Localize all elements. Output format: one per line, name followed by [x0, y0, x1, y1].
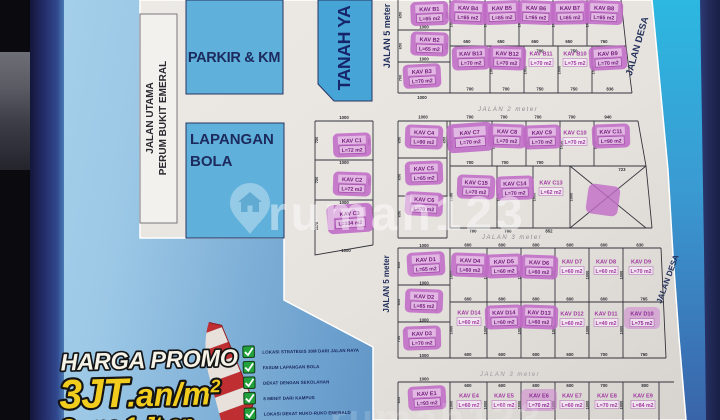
svg-text:L=70 m2: L=70 m2: [597, 403, 618, 409]
svg-text:1000: 1000: [619, 326, 624, 335]
svg-text:700: 700: [600, 383, 608, 388]
svg-text:L=72 m2: L=72 m2: [342, 147, 363, 154]
svg-text:600: 600: [464, 352, 472, 357]
svg-text:JALAN 2 meter: JALAN 2 meter: [477, 107, 538, 113]
svg-text:KAV E8: KAV E8: [597, 394, 617, 400]
svg-text:KAV D8: KAV D8: [596, 260, 616, 266]
svg-text:1000: 1000: [569, 193, 574, 202]
svg-text:L=60 m2: L=60 m2: [562, 269, 583, 275]
svg-text:L=60 m2: L=60 m2: [596, 269, 617, 275]
svg-text:940: 940: [604, 115, 612, 120]
svg-text:765: 765: [640, 297, 648, 302]
svg-text:KAV C1: KAV C1: [342, 138, 362, 145]
svg-text:KAV C4: KAV C4: [414, 130, 435, 137]
svg-text:1000: 1000: [419, 318, 429, 323]
svg-text:836: 836: [606, 87, 614, 92]
svg-text:600: 600: [566, 243, 574, 248]
svg-text:PERUM BUKIT EMERAL: PERUM BUKIT EMERAL: [158, 61, 169, 175]
svg-text:FASUM LAPANGAN BOLA: FASUM LAPANGAN BOLA: [263, 364, 321, 370]
svg-text:760: 760: [600, 39, 608, 44]
svg-text:L=60 m2: L=60 m2: [528, 319, 549, 326]
svg-text:L=65 m2: L=65 m2: [560, 15, 581, 21]
svg-text:rumah123: rumah123: [330, 397, 543, 420]
svg-text:650: 650: [497, 39, 505, 44]
svg-text:L=84 m2: L=84 m2: [633, 403, 654, 409]
svg-text:L=60 m2: L=60 m2: [459, 267, 480, 274]
svg-text:KAV C9: KAV C9: [532, 130, 552, 137]
svg-text:600: 600: [464, 383, 472, 388]
svg-text:KAV D2: KAV D2: [414, 294, 434, 301]
svg-text:700: 700: [534, 115, 542, 120]
svg-text:L=65 m2: L=65 m2: [416, 266, 437, 273]
svg-text:KAV C14: KAV C14: [503, 181, 527, 188]
svg-text:650: 650: [463, 39, 471, 44]
svg-text:L=70 m2: L=70 m2: [496, 60, 517, 67]
svg-text:1000: 1000: [418, 115, 428, 120]
svg-text:KAV B12: KAV B12: [495, 51, 518, 58]
svg-text:600: 600: [600, 297, 608, 302]
svg-text:KAV D6: KAV D6: [529, 260, 549, 267]
svg-text:650: 650: [396, 262, 401, 269]
svg-text:L=75 m2: L=75 m2: [632, 321, 653, 327]
svg-text:L=65 m2: L=65 m2: [414, 175, 435, 182]
svg-text:KAV C11: KAV C11: [599, 129, 622, 136]
svg-text:L=60 m2: L=60 m2: [494, 319, 515, 326]
svg-text:650: 650: [398, 43, 403, 50]
svg-text:LAPANGAN: LAPANGAN: [190, 131, 274, 148]
svg-text:1000: 1000: [419, 57, 429, 62]
svg-text:700: 700: [466, 87, 474, 92]
svg-text:L=60 m2: L=60 m2: [528, 269, 549, 276]
svg-text:KAV C15: KAV C15: [464, 180, 487, 187]
svg-text:650: 650: [396, 299, 401, 306]
svg-text:KAV C5: KAV C5: [414, 166, 434, 173]
svg-text:LOKASI STRATEGIS 30M DARI JALA: LOKASI STRATEGIS 30M DARI JALAN RAYA: [262, 348, 359, 355]
svg-text:730: 730: [396, 336, 401, 343]
svg-text:3JT.an/m2: 3JT.an/m2: [59, 367, 221, 417]
svg-text:600: 600: [464, 297, 472, 302]
svg-text:BOLA: BOLA: [190, 153, 233, 170]
svg-text:L=65 m2: L=65 m2: [419, 16, 440, 23]
svg-text:L=70 m2: L=70 m2: [531, 61, 552, 67]
svg-text:L=62 m2: L=62 m2: [541, 190, 562, 196]
svg-text:KAV D4: KAV D4: [460, 258, 481, 265]
svg-text:JALAN 5 meter: JALAN 5 meter: [382, 3, 392, 68]
svg-text:KAV B8: KAV B8: [594, 6, 614, 13]
svg-text:L=40 m2: L=40 m2: [596, 321, 617, 327]
svg-text:700: 700: [466, 160, 474, 165]
svg-text:KAV D5: KAV D5: [494, 259, 514, 266]
svg-text:650: 650: [397, 137, 402, 144]
svg-text:DEKAT DENGAN SEKOLAHAN: DEKAT DENGAN SEKOLAHAN: [263, 379, 329, 385]
svg-text:KAV E9: KAV E9: [633, 394, 653, 400]
svg-text:8 MENIT DARI KAMPUS: 8 MENIT DARI KAMPUS: [263, 395, 315, 401]
svg-text:1000: 1000: [339, 160, 349, 165]
svg-text:L=70 m2: L=70 m2: [532, 139, 553, 146]
svg-text:KAV D13: KAV D13: [527, 310, 550, 317]
svg-text:L=65 m2: L=65 m2: [593, 15, 614, 22]
svg-text:L=90 m2: L=90 m2: [601, 138, 622, 145]
svg-text:KAV B1: KAV B1: [419, 7, 439, 14]
svg-text:600: 600: [464, 243, 472, 248]
svg-text:KAV D9: KAV D9: [631, 260, 651, 266]
svg-text:KAV B9: KAV B9: [598, 51, 618, 58]
svg-text:L=65 m2: L=65 m2: [525, 15, 546, 22]
svg-text:700: 700: [502, 87, 510, 92]
svg-text:L=60 m2: L=60 m2: [494, 268, 515, 275]
svg-text:JALAN 3 meter: JALAN 3 meter: [479, 372, 540, 378]
svg-text:600: 600: [498, 383, 506, 388]
svg-text:700: 700: [501, 160, 509, 165]
svg-text:L=75 m2: L=75 m2: [565, 61, 586, 67]
svg-text:L=90 m2: L=90 m2: [413, 139, 434, 146]
svg-text:KAV D14: KAV D14: [457, 311, 481, 317]
svg-text:L=70 m2: L=70 m2: [412, 78, 433, 85]
svg-text:600: 600: [532, 383, 540, 388]
svg-text:JALAN 5 meter: JALAN 5 meter: [382, 255, 391, 312]
svg-text:KAV D11: KAV D11: [595, 312, 618, 318]
svg-text:1000: 1000: [419, 281, 429, 286]
svg-text:KAV C10: KAV C10: [563, 131, 586, 137]
svg-text:KAV B5: KAV B5: [492, 6, 512, 13]
svg-text:KAV B13: KAV B13: [459, 51, 482, 58]
svg-text:L=70 m2: L=70 m2: [496, 138, 517, 145]
svg-text:700: 700: [466, 115, 474, 120]
svg-text:KAV D7: KAV D7: [562, 260, 582, 266]
svg-text:1000: 1000: [339, 115, 349, 120]
svg-text:L=70 m2: L=70 m2: [598, 60, 619, 67]
svg-text:PARKIR & KM: PARKIR & KM: [188, 50, 281, 66]
svg-text:KAV D14: KAV D14: [492, 310, 516, 317]
svg-text:600: 600: [532, 352, 540, 357]
svg-text:L=70 m2: L=70 m2: [461, 60, 482, 67]
svg-text:720: 720: [314, 137, 319, 144]
svg-text:1000: 1000: [585, 271, 590, 280]
svg-text:700: 700: [500, 115, 508, 120]
svg-text:L=65 m2: L=65 m2: [457, 15, 478, 22]
svg-text:1000: 1000: [585, 401, 590, 410]
svg-text:650: 650: [531, 39, 539, 44]
svg-text:KAV D10: KAV D10: [630, 312, 653, 318]
svg-text:650: 650: [397, 174, 402, 181]
svg-text:L=65 m2: L=65 m2: [413, 303, 434, 310]
svg-text:TANAH YA: TANAH YA: [334, 5, 354, 90]
svg-text:650: 650: [398, 12, 403, 19]
svg-text:650: 650: [565, 39, 573, 44]
svg-text:1000: 1000: [341, 248, 351, 253]
svg-text:KAV C2: KAV C2: [342, 177, 362, 184]
svg-text:KAV B10: KAV B10: [563, 52, 586, 58]
svg-text:KAV C8: KAV C8: [497, 129, 517, 136]
svg-text:800: 800: [641, 383, 649, 388]
svg-text:L=70 m2: L=70 m2: [565, 140, 586, 146]
svg-text:723: 723: [618, 167, 626, 172]
svg-text:750: 750: [536, 87, 544, 92]
svg-text:L=65 m2: L=65 m2: [419, 46, 440, 53]
svg-text:L=70 m2: L=70 m2: [631, 269, 652, 275]
svg-text:630: 630: [636, 243, 644, 248]
svg-text:KAV D3: KAV D3: [412, 331, 432, 338]
svg-text:600: 600: [600, 243, 608, 248]
svg-text:600: 600: [498, 352, 506, 357]
svg-text:600: 600: [498, 297, 506, 302]
svg-text:L=60 m2: L=60 m2: [562, 403, 583, 409]
svg-text:rumah123: rumah123: [268, 188, 527, 241]
svg-text:L=70 m2: L=70 m2: [412, 340, 433, 347]
svg-text:KAV B6: KAV B6: [526, 6, 546, 13]
svg-text:600: 600: [532, 243, 540, 248]
svg-text:L=65 m2: L=65 m2: [492, 15, 513, 22]
svg-text:700: 700: [568, 115, 576, 120]
svg-text:L=60 m2: L=60 m2: [562, 321, 583, 327]
svg-text:1000: 1000: [449, 326, 454, 335]
svg-text:1000: 1000: [417, 95, 427, 100]
svg-text:600: 600: [498, 243, 506, 248]
svg-text:700: 700: [536, 160, 544, 165]
svg-text:KAV B4: KAV B4: [458, 6, 479, 13]
svg-text:JALAN UTAMA: JALAN UTAMA: [145, 82, 156, 153]
svg-text:KAV B11: KAV B11: [530, 52, 553, 58]
svg-text:1000: 1000: [419, 353, 429, 358]
svg-text:760: 760: [640, 352, 648, 357]
svg-text:720: 720: [314, 177, 319, 184]
svg-text:600: 600: [566, 352, 574, 357]
svg-text:600: 600: [566, 383, 574, 388]
svg-text:1000: 1000: [419, 243, 429, 248]
svg-text:700: 700: [600, 352, 608, 357]
svg-text:KAV D1: KAV D1: [416, 257, 436, 264]
svg-text:KAV C13: KAV C13: [539, 181, 562, 187]
svg-text:1000: 1000: [585, 326, 590, 335]
svg-text:L=60 m2: L=60 m2: [459, 320, 480, 326]
svg-text:KAV B3: KAV B3: [412, 69, 432, 76]
svg-text:1000: 1000: [619, 271, 624, 280]
svg-text:KAV E7: KAV E7: [562, 394, 582, 400]
svg-text:852: 852: [545, 229, 553, 234]
svg-text:600: 600: [532, 297, 540, 302]
svg-text:KAV B2: KAV B2: [419, 37, 439, 44]
svg-text:600: 600: [566, 297, 574, 302]
svg-text:1000: 1000: [419, 377, 429, 382]
svg-text:1000: 1000: [557, 66, 562, 75]
svg-text:750: 750: [570, 87, 578, 92]
svg-text:KAV B7: KAV B7: [560, 6, 580, 12]
svg-text:KAV D12: KAV D12: [560, 312, 583, 318]
svg-text:700: 700: [398, 75, 403, 82]
